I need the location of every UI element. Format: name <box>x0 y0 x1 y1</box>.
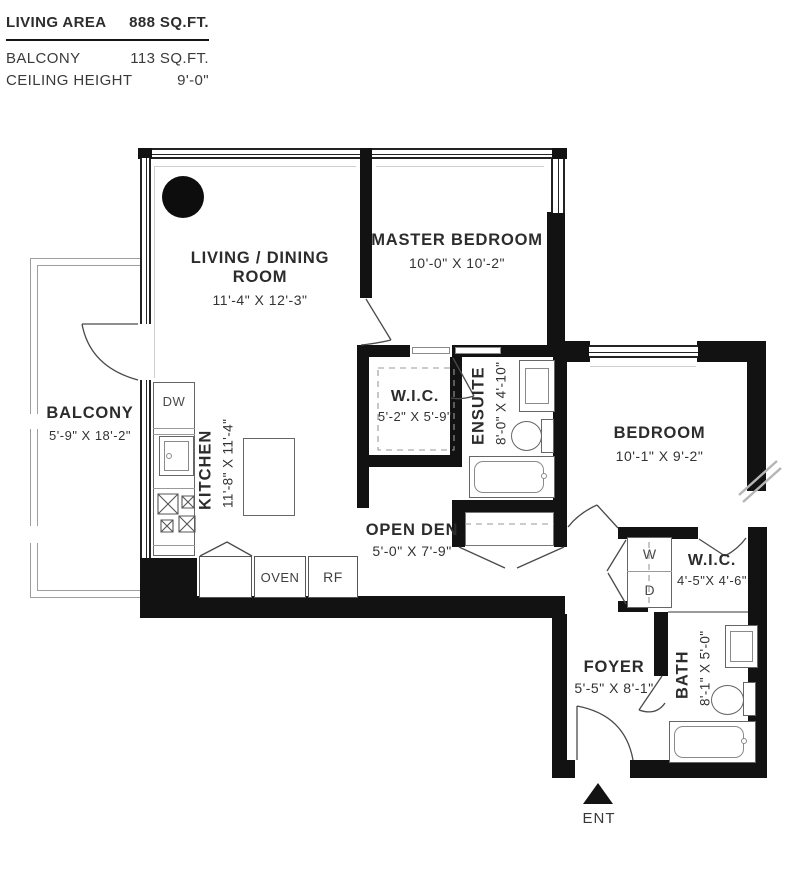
counter-divider <box>153 428 195 429</box>
living-area-label: LIVING AREA <box>6 12 107 34</box>
room-label-living-dining: LIVING / DINING ROOM 11'-4" X 12'-3" <box>168 249 352 308</box>
wall-segment <box>552 148 567 159</box>
dryer-label: D <box>627 582 672 598</box>
window <box>551 159 565 213</box>
ensuite-sink-basin <box>525 368 549 404</box>
closet-divider <box>627 571 672 572</box>
wall-segment <box>140 558 197 618</box>
bedroom-dims: 10'-1" X 9'-2" <box>572 448 747 464</box>
master-bedroom-dims: 10'-0" X 10'-2" <box>365 255 549 271</box>
ensuite-toilet-icon <box>511 421 542 451</box>
wall-face-line <box>376 166 544 167</box>
window <box>372 148 552 159</box>
bath-dims: 8'-1" X 5'-0" <box>695 624 715 712</box>
room-label-kitchen: KITCHEN <box>194 424 218 516</box>
room-label-wic-bedroom: W.I.C. 4'-5"X 4'-6" <box>668 551 756 588</box>
window <box>140 158 151 324</box>
kitchen-island <box>243 438 295 516</box>
wall-segment <box>552 614 567 764</box>
wall-segment <box>553 352 567 512</box>
room-label-open-den: OPEN DEN 5'-0" X 7'-9" <box>356 521 468 559</box>
wall-segment <box>547 212 565 353</box>
bath-tub-drain <box>741 738 747 744</box>
den-closet <box>465 512 554 546</box>
window <box>152 148 360 159</box>
kitchen-dims: 11'-8" X 11'-4" <box>218 407 238 519</box>
foyer-name: FOYER <box>568 658 660 677</box>
open-den-dims: 5'-0" X 7'-9" <box>356 543 468 559</box>
wall-segment <box>360 148 372 298</box>
ensuite-dims: 8'-0" X 4'-10" <box>491 352 511 454</box>
master-bedroom-name: MASTER BEDROOM <box>365 231 549 250</box>
wall-segment <box>452 500 567 512</box>
wall-segment <box>357 455 462 467</box>
bath-bathtub-basin <box>674 726 744 758</box>
legend-row-living-area: LIVING AREA 888 SQ.FT. <box>6 12 209 41</box>
wall-segment <box>553 341 590 362</box>
counter-divider <box>153 488 195 489</box>
fridge-label: RF <box>308 556 358 598</box>
wall-face-line <box>590 366 696 367</box>
balcony-rail-break <box>25 526 45 543</box>
living-room-name-line2: ROOM <box>168 268 352 287</box>
wall-segment <box>197 596 565 618</box>
balcony-name: BALCONY <box>38 404 142 423</box>
balcony-area-value: 113 SQ.FT. <box>130 48 209 70</box>
balcony-area-label: BALCONY <box>6 48 81 70</box>
entry-label: ENT <box>568 810 630 827</box>
ceiling-height-label: CEILING HEIGHT <box>6 70 132 92</box>
balcony-dims: 5'-9" X 18'-2" <box>38 428 142 443</box>
bedroom-name: BEDROOM <box>572 424 747 443</box>
area-legend: LIVING AREA 888 SQ.FT. BALCONY 113 SQ.FT… <box>6 12 209 92</box>
wic-bedroom-dims: 4'-5"X 4'-6" <box>668 573 756 588</box>
faucet-icon <box>166 453 172 459</box>
ensuite-bathtub-basin <box>474 461 544 493</box>
window <box>589 345 698 358</box>
legend-row-ceiling: CEILING HEIGHT 9'-0" <box>6 70 209 92</box>
wall-segment <box>357 345 369 508</box>
ensuite-toilet-tank <box>541 419 554 453</box>
room-label-wic-master: W.I.C. 5'-2" X 5'-9" <box>372 387 458 424</box>
wic-door-slab <box>412 347 450 354</box>
entry-arrow-icon <box>583 783 613 804</box>
room-label-master-bedroom: MASTER BEDROOM 10'-0" X 10'-2" <box>365 231 549 271</box>
room-label-ensuite: ENSUITE <box>467 362 491 450</box>
room-label-balcony: BALCONY 5'-9" X 18'-2" <box>38 404 142 443</box>
room-label-bath: BATH <box>672 644 694 706</box>
bath-sink-basin <box>730 631 753 662</box>
pantry-cabinet <box>199 556 252 598</box>
wall-segment <box>554 512 567 547</box>
room-label-foyer: FOYER 5'-5" X 8'-1" <box>568 658 660 696</box>
wall-segment <box>747 341 766 491</box>
wall-face-line <box>154 166 356 167</box>
column-icon <box>162 176 204 218</box>
room-label-bedroom: BEDROOM 10'-1" X 9'-2" <box>572 424 747 464</box>
ceiling-height-value: 9'-0" <box>177 70 209 92</box>
washer-label: W <box>627 546 672 562</box>
oven-label: OVEN <box>254 556 306 598</box>
open-den-name: OPEN DEN <box>356 521 468 540</box>
dishwasher-label: DW <box>153 394 195 409</box>
counter-divider <box>153 545 195 546</box>
living-room-name-line1: LIVING / DINING <box>168 249 352 268</box>
floor-plan: LIVING AREA 888 SQ.FT. BALCONY 113 SQ.FT… <box>0 0 800 889</box>
wic-bedroom-name: W.I.C. <box>668 551 756 570</box>
living-area-value: 888 SQ.FT. <box>129 12 209 34</box>
partition-line <box>668 611 748 613</box>
ensuite-tub-drain <box>541 473 547 479</box>
foyer-dims: 5'-5" X 8'-1" <box>568 680 660 696</box>
wic-master-dims: 5'-2" X 5'-9" <box>372 409 458 424</box>
legend-row-balcony: BALCONY 113 SQ.FT. <box>6 48 209 70</box>
wall-segment <box>552 760 575 778</box>
bath-toilet-icon <box>711 685 744 715</box>
living-room-dims: 11'-4" X 12'-3" <box>168 292 352 308</box>
counter-divider <box>153 434 195 435</box>
wall-face-line <box>154 166 155 378</box>
bath-toilet-tank <box>743 682 756 716</box>
wic-master-name: W.I.C. <box>372 387 458 406</box>
